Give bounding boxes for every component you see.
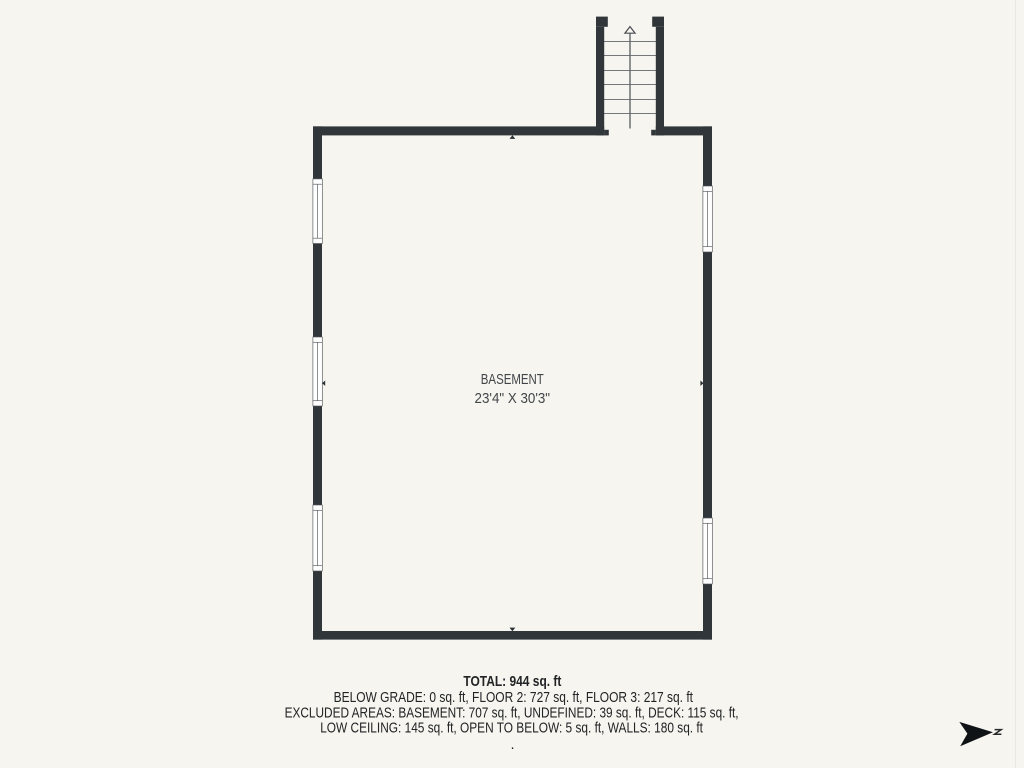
svg-text:EXCLUDED AREAS: BASEMENT: 707: EXCLUDED AREAS: BASEMENT: 707 sq. ft, UN… xyxy=(285,705,739,721)
svg-text:TOTAL: 944 sq. ft: TOTAL: 944 sq. ft xyxy=(463,674,561,690)
svg-text:BASEMENT: BASEMENT xyxy=(481,372,544,388)
svg-text:.: . xyxy=(510,737,514,753)
svg-text:BELOW GRADE: 0 sq. ft, FLOOR 2: BELOW GRADE: 0 sq. ft, FLOOR 2: 727 sq. … xyxy=(334,690,693,706)
svg-text:23'4" X 30'3": 23'4" X 30'3" xyxy=(475,391,551,407)
svg-text:LOW CEILING: 145 sq. ft, OPEN: LOW CEILING: 145 sq. ft, OPEN TO BELOW: … xyxy=(320,721,703,737)
